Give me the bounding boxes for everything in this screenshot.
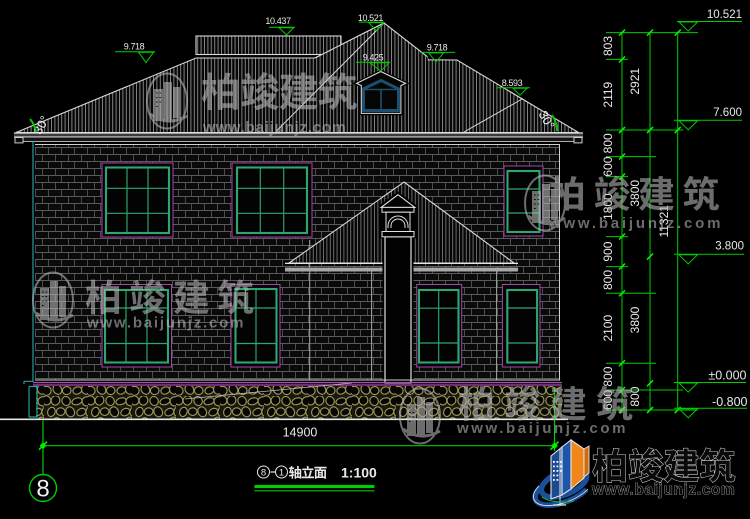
svg-text:800: 800 bbox=[628, 386, 642, 406]
svg-text:7.600: 7.600 bbox=[713, 107, 742, 119]
svg-text:www.baijunjz.com: www.baijunjz.com bbox=[86, 315, 245, 332]
svg-text:2119: 2119 bbox=[601, 81, 615, 107]
svg-text:9.718: 9.718 bbox=[427, 43, 448, 53]
svg-text:2100: 2100 bbox=[601, 315, 615, 342]
svg-text:3800: 3800 bbox=[628, 306, 642, 333]
svg-text:10.521: 10.521 bbox=[707, 9, 742, 21]
svg-text:www.baijunjz.com: www.baijunjz.com bbox=[548, 215, 723, 232]
svg-text:2921: 2921 bbox=[628, 68, 642, 95]
svg-text:8: 8 bbox=[261, 468, 266, 479]
svg-text:3.800: 3.800 bbox=[715, 241, 744, 253]
svg-text:1:100: 1:100 bbox=[341, 465, 377, 481]
svg-text:900: 900 bbox=[601, 241, 615, 261]
svg-text:-0.800: -0.800 bbox=[712, 395, 747, 409]
svg-text:3800: 3800 bbox=[628, 180, 642, 207]
svg-text:www.baijunjz.com: www.baijunjz.com bbox=[456, 420, 628, 437]
svg-text:8: 8 bbox=[36, 476, 49, 503]
svg-text:±0.000: ±0.000 bbox=[708, 369, 746, 383]
svg-text:1: 1 bbox=[279, 468, 284, 479]
svg-text:www.baijunjz.com: www.baijunjz.com bbox=[591, 482, 735, 499]
svg-text:www.baijunjz.com: www.baijunjz.com bbox=[202, 120, 346, 137]
svg-text:800: 800 bbox=[601, 270, 615, 290]
svg-text:800: 800 bbox=[601, 366, 615, 386]
svg-text:10.437: 10.437 bbox=[265, 16, 291, 26]
svg-text:803: 803 bbox=[601, 36, 615, 56]
svg-text:10.521: 10.521 bbox=[358, 13, 384, 23]
svg-text:800: 800 bbox=[601, 133, 615, 153]
svg-text:8.593: 8.593 bbox=[502, 78, 523, 88]
svg-text:9.718: 9.718 bbox=[124, 42, 145, 52]
svg-text:9.425: 9.425 bbox=[363, 53, 384, 63]
svg-text:600: 600 bbox=[601, 156, 615, 176]
svg-text:14900: 14900 bbox=[283, 426, 318, 440]
